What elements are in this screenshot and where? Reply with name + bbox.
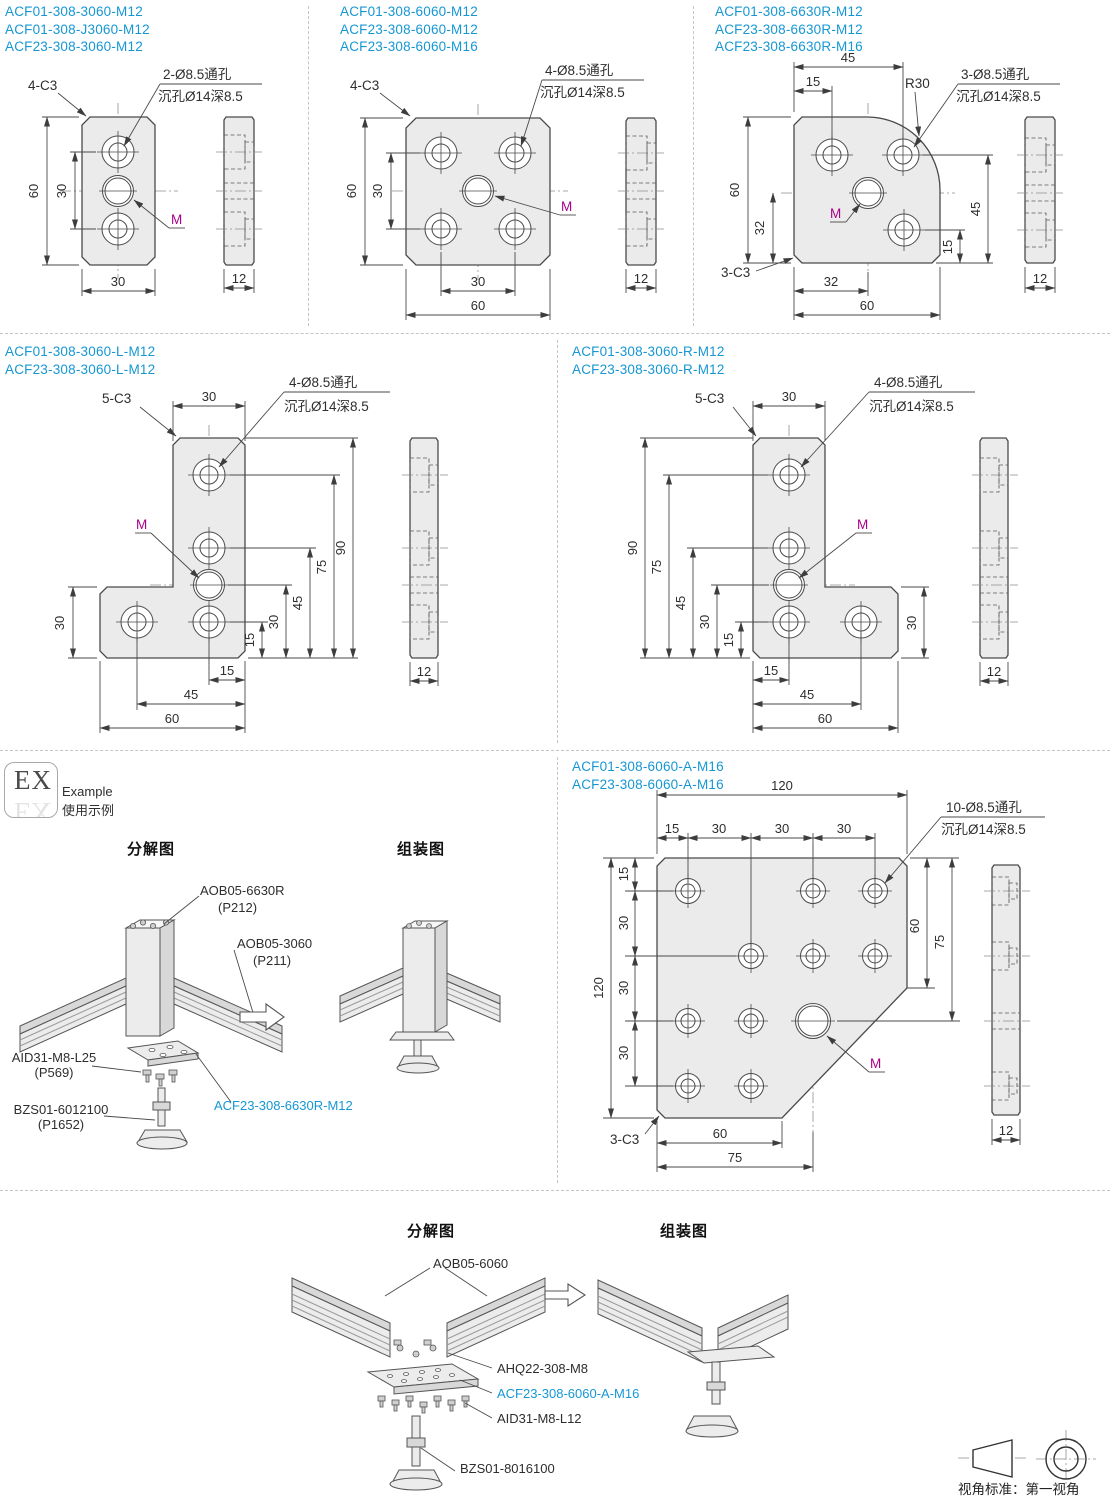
counterbore-note: 沉孔Ø14深8.5: [540, 85, 625, 100]
assembled-view-drawing: [598, 1280, 788, 1437]
dim-right-45: 45: [290, 596, 305, 610]
assembled-view-title: 组装图: [660, 1220, 708, 1241]
example-label-en: Example: [62, 784, 113, 799]
ex-icon: EX: [14, 765, 52, 796]
label-bzs01-code: BZS01-6012100: [6, 1102, 116, 1117]
label-bzs01: BZS01-6012100 (P1652): [6, 1102, 116, 1132]
label-aob05-6630r: AOB05-6630R: [200, 883, 285, 898]
label-aob05-6630r-page: (P212): [218, 900, 257, 915]
hole-note: 4-Ø8.5通孔: [545, 63, 614, 78]
thread-label: M: [830, 206, 841, 221]
exploded-view-title: 分解图: [127, 838, 175, 859]
part-number: ACF23-308-6060-A-M16: [572, 776, 724, 794]
dim-left-30b: 30: [616, 981, 631, 995]
dim-thickness-12: 12: [634, 271, 648, 286]
panel-bottom-example: 分解图 组装图: [0, 1190, 1110, 1502]
dim-seg-15: 15: [665, 821, 679, 836]
part-number: ACF01-308-J3060-M12: [5, 21, 150, 39]
dim-thickness-12: 12: [232, 271, 246, 286]
dim-pitch-30b: 30: [471, 274, 485, 289]
hole-note: 10-Ø8.5通孔: [946, 800, 1022, 815]
side-view: [1017, 117, 1063, 293]
part-number: ACF23-308-6060-M12: [340, 21, 478, 39]
dim-left-120: 120: [591, 977, 606, 999]
label-acf23-6060-a: ACF23-308-6060-A-M16: [497, 1386, 639, 1401]
drawing-6060-a: 120 15 30 30 30 10-Ø8.5通孔 沉孔Ø14深8.5 15 3…: [555, 750, 1110, 1190]
dim-right-30: 30: [904, 616, 919, 630]
dim-bottom-60: 60: [818, 711, 832, 726]
dim-right-75: 75: [314, 560, 329, 574]
part-number: ACF01-308-3060-R-M12: [572, 343, 725, 361]
label-aob05-3060: AOB05-3060: [237, 936, 312, 951]
thread-label: M: [136, 517, 147, 532]
counterbore-note: 沉孔Ø14深8.5: [284, 399, 369, 414]
part-number: ACF01-308-6630R-M12: [715, 3, 863, 21]
bottom-drawings: [0, 1190, 1110, 1502]
side-view: [402, 438, 448, 686]
part-number: ACF23-308-6060-M16: [340, 38, 478, 56]
side-view: [216, 117, 262, 293]
part-number: ACF01-308-6060-M12: [340, 3, 478, 21]
dim-top-30: 30: [202, 389, 216, 404]
dim-right-90: 90: [333, 541, 348, 555]
dim-left-60: 60: [727, 183, 742, 197]
dim-top-30: 30: [782, 389, 796, 404]
part-number: ACF23-308-6630R-M16: [715, 38, 863, 56]
dim-left-30a: 30: [616, 916, 631, 930]
dim-bottom-45: 45: [800, 687, 814, 702]
frustum-icon: [973, 1440, 1012, 1477]
dim-thickness-12: 12: [1033, 271, 1047, 286]
assembled-view-drawing: [340, 921, 500, 1073]
dim-left-30: 30: [52, 616, 67, 630]
panel-3060-l: ACF01-308-3060-L-M12 ACF23-308-3060-L-M1…: [0, 333, 557, 750]
side-view: [984, 865, 1030, 1145]
chamfer-note: 5-C3: [102, 391, 131, 406]
dim-right-75: 75: [932, 935, 947, 949]
dim-thickness-12: 12: [999, 1123, 1013, 1138]
panel-example: EX EX Example 使用示例 分解图 组装图: [0, 750, 555, 1190]
panel-6630r: ACF01-308-6630R-M12 ACF23-308-6630R-M12 …: [693, 0, 1110, 333]
label-acf23-6630r: ACF23-308-6630R-M12: [214, 1098, 353, 1113]
hole-note: 4-Ø8.5通孔: [289, 375, 358, 390]
dim-bottom-15: 15: [220, 663, 234, 678]
dim-right-60: 60: [907, 919, 922, 933]
dim-height-60: 60: [344, 184, 359, 198]
dim-right-15: 15: [940, 240, 955, 254]
thread-label: M: [857, 517, 868, 532]
part-number: ACF01-308-6060-A-M16: [572, 758, 724, 776]
dim-width-30: 30: [111, 274, 125, 289]
exploded-view-title: 分解图: [407, 1220, 455, 1241]
dim-height-60: 60: [26, 184, 41, 198]
counterbore-note: 沉孔Ø14深8.5: [158, 89, 243, 104]
thread-label: M: [171, 212, 182, 227]
label-aob05-6060: AOB05-6060: [433, 1256, 508, 1271]
dim-left-30: 30: [697, 615, 712, 629]
hole-note: 2-Ø8.5通孔: [163, 67, 232, 82]
label-aid31: AID31-M8-L25 (P569): [8, 1050, 100, 1080]
counterbore-note: 沉孔Ø14深8.5: [869, 399, 954, 414]
chamfer-note: 4-C3: [350, 78, 379, 93]
transform-arrow-icon: [545, 1284, 585, 1306]
dim-bottom-60: 60: [713, 1126, 727, 1141]
label-aid31-l12: AID31-M8-L12: [497, 1411, 582, 1426]
dim-bottom-32: 32: [824, 274, 838, 289]
drawing-3060-l: 5-C3 30 4-Ø8.5通孔 沉孔Ø14深8.5 M 30 15 45 60…: [0, 333, 557, 750]
radius-note: R30: [905, 76, 930, 91]
chamfer-note: 4-C3: [28, 78, 57, 93]
label-aid31-page: (P569): [8, 1065, 100, 1080]
dim-bottom-75: 75: [728, 1150, 742, 1165]
dim-top-120: 120: [771, 778, 793, 793]
dim-top-15: 15: [806, 74, 820, 89]
dim-pitch-30: 30: [54, 184, 69, 198]
label-aob05-3060-page: (P211): [253, 953, 291, 968]
chamfer-note: 3-C3: [610, 1132, 639, 1147]
part-number: ACF23-308-3060-M12: [5, 38, 150, 56]
label-aid31-code: AID31-M8-L25: [8, 1050, 100, 1065]
dim-seg-30a: 30: [712, 821, 726, 836]
part-number: ACF01-308-3060-M12: [5, 3, 150, 21]
dim-left-90: 90: [625, 541, 640, 555]
part-number: ACF01-308-3060-L-M12: [5, 343, 155, 361]
dim-bottom-60: 60: [165, 711, 179, 726]
assembled-view-title: 组装图: [397, 838, 445, 859]
dim-left-32: 32: [752, 221, 767, 235]
side-view: [972, 438, 1018, 686]
panel-6060: ACF01-308-6060-M12 ACF23-308-6060-M12 AC…: [308, 0, 693, 333]
panel-3060: ACF01-308-3060-M12 ACF01-308-J3060-M12 A…: [0, 0, 308, 333]
chamfer-note: 5-C3: [695, 391, 724, 406]
label-bzs01-8016100: BZS01-8016100: [460, 1461, 555, 1476]
chamfer-note: 3-C3: [721, 265, 750, 280]
part-number: ACF23-308-3060-L-M12: [5, 361, 155, 379]
part-number: ACF23-308-3060-R-M12: [572, 361, 725, 379]
dim-width-60: 60: [471, 298, 485, 313]
dim-left-30c: 30: [616, 1046, 631, 1060]
dim-bottom-15: 15: [764, 663, 778, 678]
dim-seg-30c: 30: [837, 821, 851, 836]
dim-bottom-45: 45: [184, 687, 198, 702]
dim-left-45: 45: [673, 596, 688, 610]
counterbore-note: 沉孔Ø14深8.5: [941, 822, 1026, 837]
hole-note: 4-Ø8.5通孔: [874, 375, 943, 390]
dim-left-75: 75: [649, 560, 664, 574]
thread-label: M: [870, 1056, 881, 1071]
example-badge: EX EX: [4, 762, 58, 818]
dim-pitch-30: 30: [370, 184, 385, 198]
panel-3060-r: ACF01-308-3060-R-M12 ACF23-308-3060-R-M1…: [555, 333, 1110, 750]
label-bzs01-page: (P1652): [6, 1117, 116, 1132]
view-standard-note: 视角标准：第一视角: [958, 1478, 1080, 1498]
side-view: [618, 118, 664, 293]
thread-label: M: [561, 199, 572, 214]
catalog-page: ACF01-308-3060-M12 ACF01-308-J3060-M12 A…: [0, 0, 1110, 1502]
label-ahq22: AHQ22-308-M8: [497, 1361, 588, 1376]
panel-6060-a: ACF01-308-6060-A-M16 ACF23-308-6060-A-M1…: [555, 750, 1110, 1190]
dim-left-15: 15: [721, 633, 736, 647]
drawing-3060-r: 5-C3 30 4-Ø8.5通孔 沉孔Ø14深8.5 M 90 75 45 30…: [555, 333, 1110, 750]
dim-seg-30b: 30: [775, 821, 789, 836]
hole-note: 3-Ø8.5通孔: [961, 67, 1030, 82]
counterbore-holes: [97, 131, 139, 250]
example-label-zh: 使用示例: [62, 800, 114, 819]
dim-right-15: 15: [242, 633, 257, 647]
dim-left-15: 15: [616, 867, 631, 881]
dim-right-30: 30: [266, 615, 281, 629]
ex-icon-reflection: EX: [14, 796, 52, 818]
dim-bottom-60: 60: [860, 298, 874, 313]
dim-thickness-12: 12: [417, 664, 431, 679]
dim-thickness-12: 12: [987, 664, 1001, 679]
exploded-view-drawing: [292, 1268, 545, 1490]
counterbore-note: 沉孔Ø14深8.5: [956, 89, 1041, 104]
part-number: ACF23-308-6630R-M12: [715, 21, 863, 39]
dim-right-45: 45: [968, 202, 983, 216]
